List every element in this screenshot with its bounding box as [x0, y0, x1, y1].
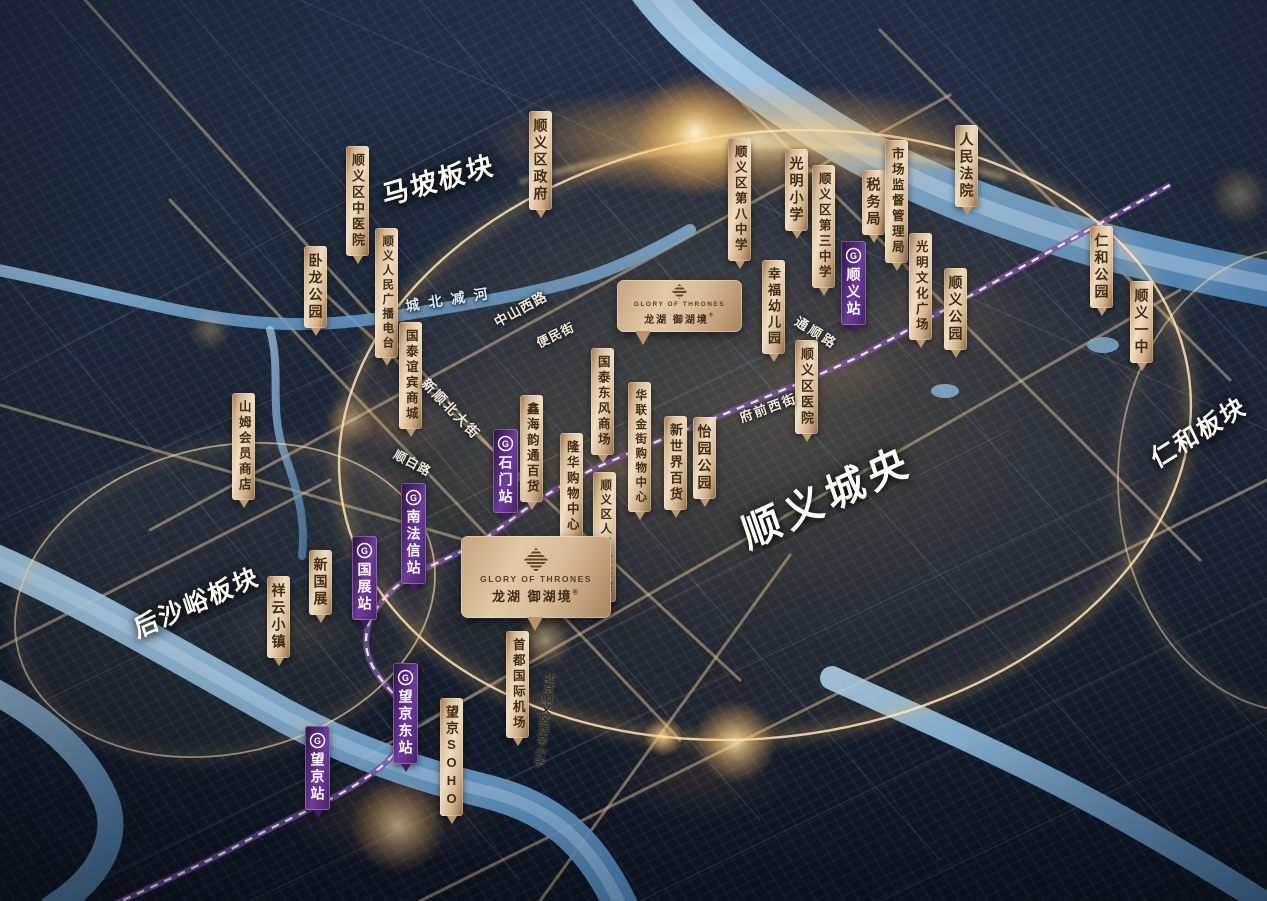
- longfor-diamond-icon: [524, 548, 548, 572]
- poi-tag-label: 华联金街购物中心: [634, 382, 646, 512]
- road-label-chengbei-jian-river-label: 城北减河: [404, 282, 498, 316]
- poi-tag-label: 顺义区第八中学: [733, 138, 746, 261]
- poi-tag-label: 国泰谊宾商城: [404, 322, 417, 429]
- poi-tag-shunyi-park: 顺义公园: [944, 268, 967, 350]
- metro-station-label: 顺义站: [847, 264, 861, 325]
- poi-tag-label: 怡园公园: [698, 417, 712, 499]
- metro-tag-shunyi-station: G顺义站: [841, 241, 866, 325]
- poi-tag-label: 顺义人民广播电台: [381, 228, 393, 358]
- beijing-metro-icon: G: [356, 542, 373, 559]
- project-name-en: GLORY OF THRONES: [480, 574, 592, 584]
- poi-tag-longhua-shopping-center: 隆华购物中心: [560, 433, 583, 540]
- metro-icon-wrap: G: [497, 435, 514, 452]
- beijing-metro-icon: G: [497, 435, 514, 452]
- poi-tag-capital-airport: 首都国际机场: [506, 631, 529, 738]
- poi-tag-label: 首都国际机场: [511, 631, 524, 738]
- poi-tag-guotai-yibin-mall: 国泰谊宾商城: [399, 322, 422, 429]
- svg-text:G: G: [402, 673, 409, 683]
- poi-tag-yiyuan-park: 怡园公园: [693, 417, 716, 499]
- poi-tag-tax-bureau: 税务局: [862, 170, 885, 235]
- registered-mark: ®: [709, 313, 715, 319]
- poi-tag-guangming-culture-plaza: 光明文化广场: [909, 233, 932, 340]
- poi-tag-sams-club: 山姆会员商店: [232, 393, 255, 500]
- poi-tag-label: 税务局: [867, 170, 881, 235]
- svg-text:G: G: [850, 251, 857, 261]
- area-label-houshayu-plate: 后沙峪板块: [129, 556, 264, 645]
- poi-tag-label: 祥云小镇: [272, 576, 286, 658]
- beijing-metro-icon: G: [397, 669, 414, 686]
- road-label-fuqian-west-street: 府前西街: [737, 388, 800, 426]
- poi-tag-shunyi-tcm-hospital: 顺义区中医院: [346, 146, 369, 256]
- svg-text:G: G: [410, 493, 417, 503]
- poi-tag-label: 望京SOHO: [445, 698, 458, 816]
- longfor-diamond-icon: [672, 284, 687, 299]
- metro-tag-wangjing-east-station: G望京东站: [393, 663, 418, 764]
- metro-icon-wrap: G: [309, 732, 326, 749]
- metro-station-label: 国展站: [358, 559, 372, 620]
- poi-tag-label: 顺义公园: [949, 268, 963, 350]
- poi-tag-label: 山姆会员商店: [237, 393, 250, 500]
- road-label-bianmin-street: 便民街: [533, 317, 578, 352]
- metro-tag-wangjing-station: G望京站: [305, 726, 330, 810]
- poi-tag-xinhai-yuntong-dept-store: 鑫海韵通百货: [520, 395, 543, 502]
- road-label-xinshun-north-street: 新顺北大街: [418, 373, 486, 443]
- poi-tag-people-court: 人民法院: [955, 125, 978, 207]
- beijing-metro-icon: G: [405, 489, 422, 506]
- poi-tag-label: 顺义一中: [1135, 281, 1149, 363]
- metro-tag-shimen-station: G石门站: [493, 429, 518, 513]
- poi-tag-label: 市场监督管理局: [890, 140, 903, 263]
- poi-tag-label: 卧龙公园: [309, 246, 323, 328]
- metro-icon-wrap: G: [845, 247, 862, 264]
- poi-tag-label: 鑫海韵通百货: [525, 395, 538, 502]
- poi-tag-label: 顺义区中医院: [351, 146, 364, 256]
- beijing-metro-icon: G: [845, 247, 862, 264]
- road-label-shunbai-road: 顺白路: [391, 444, 436, 480]
- poi-tag-new-world-dept-store: 新世界百货: [664, 416, 687, 510]
- poi-tag-shunyi-district-hospital: 顺义区医院: [795, 340, 818, 434]
- metro-icon-wrap: G: [397, 669, 414, 686]
- svg-text:G: G: [314, 736, 321, 746]
- poi-tag-guangming-primary-school: 光明小学: [785, 149, 808, 231]
- poi-tag-renhe-park: 仁和公园: [1090, 226, 1113, 308]
- registered-mark: ®: [573, 589, 580, 597]
- poi-tag-market-supervision-bureau: 市场监督管理局: [885, 140, 908, 263]
- poi-tag-new-cnec: 新国展: [309, 550, 332, 615]
- poi-tag-label: 顺义区医院: [800, 340, 813, 434]
- project-name-cn-text: 龙湖 御湖境: [492, 589, 573, 604]
- poi-tag-label: 仁和公园: [1095, 226, 1109, 308]
- shunyi-aerial-location-map: 顺义区中医院顺义区政府卧龙公园顺义人民广播电台国泰谊宾商城鑫海韵通百货国泰东风商…: [0, 0, 1267, 901]
- poi-tag-wangjing-soho: 望京SOHO: [440, 698, 463, 816]
- poi-tag-shunyi-district-government: 顺义区政府: [529, 111, 552, 210]
- svg-text:G: G: [361, 546, 368, 556]
- area-label-shunyi-city-center: 顺义城央: [733, 428, 919, 561]
- poi-tag-shunyi-no8-middle-school: 顺义区第八中学: [728, 138, 751, 261]
- poi-tag-label: 新国展: [314, 550, 328, 615]
- poi-tag-wolong-park: 卧龙公园: [304, 246, 327, 328]
- poi-tag-label: 人民法院: [960, 125, 974, 207]
- poi-tag-hualian-gold-street-mall: 华联金街购物中心: [628, 382, 651, 512]
- project-name-en: GLORY OF THRONES: [634, 301, 725, 308]
- metro-station-label: 望京东站: [399, 686, 413, 764]
- metro-station-label: 望京站: [311, 749, 325, 810]
- road-label-xixin-primary-school: 北京顺义区西辛小学: [532, 671, 558, 767]
- beijing-metro-icon: G: [309, 732, 326, 749]
- poi-tag-xiangyun-town: 祥云小镇: [267, 576, 290, 658]
- poi-tag-shunyi-no3-middle-school: 顺义区第三中学: [812, 165, 835, 288]
- poi-tag-label: 国泰东风商场: [596, 348, 609, 455]
- poi-tag-label: 光明小学: [790, 149, 804, 231]
- poi-tag-label: 顺义区第三中学: [817, 165, 830, 288]
- project-plaque-north: GLORY OF THRONES龙湖 御湖境®: [617, 280, 742, 332]
- poi-tag-xingfu-kindergarten: 幸福幼儿园: [762, 260, 785, 354]
- metro-station-label: 石门站: [499, 452, 513, 513]
- poi-tag-label: 新世界百货: [669, 416, 682, 510]
- area-label-renhe-plate: 仁和板块: [1144, 386, 1251, 476]
- metro-tag-guozhan-station: G国展站: [352, 536, 377, 620]
- poi-tag-guotai-dongfeng-mall: 国泰东风商场: [591, 348, 614, 455]
- project-plaque-main: GLORY OF THRONES龙湖 御湖境®: [461, 536, 611, 618]
- project-name-cn-text: 龙湖 御湖境: [644, 315, 709, 326]
- project-name-cn: 龙湖 御湖境®: [644, 310, 715, 328]
- metro-icon-wrap: G: [405, 489, 422, 506]
- poi-tag-label: 幸福幼儿园: [767, 260, 780, 354]
- poi-tag-label: 光明文化广场: [914, 233, 927, 340]
- labels-layer: 顺义区中医院顺义区政府卧龙公园顺义人民广播电台国泰谊宾商城鑫海韵通百货国泰东风商…: [0, 0, 1267, 901]
- metro-station-label: 南法信站: [407, 506, 421, 584]
- poi-tag-shunyi-radio-station: 顺义人民广播电台: [375, 228, 398, 358]
- poi-tag-label: 隆华购物中心: [565, 433, 578, 540]
- road-label-zhongshan-west-road: 中山西路: [490, 285, 550, 331]
- metro-icon-wrap: G: [356, 542, 373, 559]
- metro-tag-nanfaxin-station: G南法信站: [401, 483, 426, 584]
- project-name-cn: 龙湖 御湖境®: [492, 586, 580, 606]
- poi-tag-shunyi-no1-high-school: 顺义一中: [1130, 281, 1153, 363]
- svg-text:G: G: [502, 439, 509, 449]
- area-label-mapo-plate: 马坡板块: [379, 143, 497, 214]
- poi-tag-label: 顺义区政府: [534, 111, 548, 210]
